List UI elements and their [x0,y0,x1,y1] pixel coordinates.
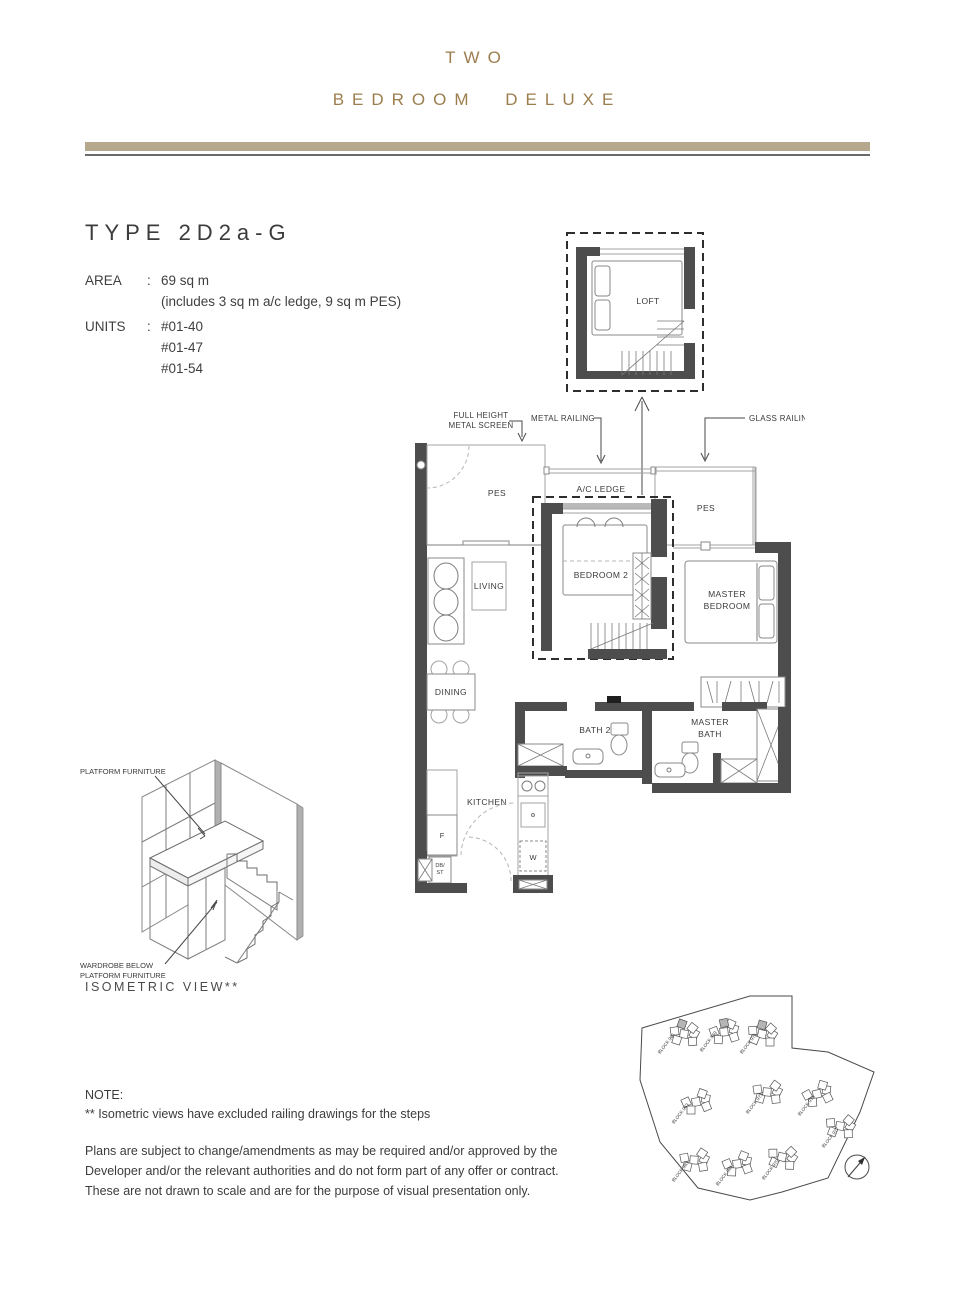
brochure-page: TWO BEDROOM DELUXE TYPE 2D2a-G AREA : 69… [0,0,954,1296]
area-value: 69 sq m [161,270,209,291]
callout-label: METAL SCREEN [449,421,514,430]
room-kitchen: KITCHEN F DB/ ST W [415,770,553,893]
db-st-label: ST [436,870,444,876]
sofa [428,558,464,644]
disclaimer-text: Plans are subject to change/amendments a… [85,1141,567,1202]
note-block: NOTE: ** Isometric views have excluded r… [85,1086,585,1202]
washer-label: W [529,853,537,862]
room-dining: DINING [427,661,475,723]
header-divider-bar [85,142,870,156]
room-label-loft: LOFT [636,296,659,306]
bath2-toilet [611,723,628,735]
master-bath-sink [655,763,685,777]
wardrobe-below-label: PLATFORM FURNITURE [80,971,166,980]
page-title-line2: BEDROOM DELUXE [0,90,954,110]
room-pes-left: PES [427,445,545,545]
callout-glass-railing: GLASS RAILING [701,414,805,461]
room-label-bath2: BATH 2 [579,725,611,735]
callout-label: GLASS RAILING [749,414,805,423]
units-row: UNITS : #01-40 [85,316,401,337]
fridge-label: F [440,831,445,840]
area-row: AREA : 69 sq m [85,270,401,291]
left-boundary-wall [415,443,427,890]
loft-plan: LOFT [567,233,703,391]
unit-number: #01-47 [161,337,401,358]
kitchen-sink [521,803,545,827]
room-master-bedroom: MASTER BEDROOM [685,542,791,709]
platform-furniture-label: PLATFORM FURNITURE [80,767,166,776]
room-label-master-bath: BATH [698,729,722,739]
room-label-kitchen: KITCHEN [467,797,507,807]
area-label: AREA [85,270,147,291]
note-line: ** Isometric views have excluded railing… [85,1105,585,1124]
note-heading: NOTE: [85,1086,585,1105]
isometric-view-caption: ISOMETRIC VIEW** [85,980,240,994]
callout-label: FULL HEIGHT [453,411,508,420]
isometric-view-diagram: PLATFORM FURNITURE WARDROBE BELOW PLATFO… [75,752,335,1002]
units-label: UNITS [85,316,147,337]
room-label-bedroom2: BEDROOM 2 [574,570,629,580]
spec-block: AREA : 69 sq m (includes 3 sq m a/c ledg… [85,270,401,379]
room-label-ac-ledge: A/C LEDGE [577,484,626,494]
area-colon: : [147,270,161,291]
bedroom2-stairs [591,623,653,649]
wardrobe-below-label: WARDROBE BELOW [80,961,154,970]
area-note: (includes 3 sq m a/c ledge, 9 sq m PES) [161,291,401,312]
room-label-master-bedroom: BEDROOM [704,601,751,611]
db-st-label: DB/ [435,863,445,869]
callout-metal-railing: METAL RAILING [531,414,605,463]
site-key-plan: BLOCK 965 BLOCK 969 BLOCK 971 BLOCK 963 … [632,992,878,1214]
room-bath2: BATH 2 [515,696,652,784]
unit-number: #01-40 [161,316,203,337]
room-label-master-bath: MASTER [691,717,729,727]
room-label-pes-left: PES [488,488,506,498]
room-master-bath: MASTER BATH [652,702,791,793]
callout-full-height-metal-screen: FULL HEIGHT METAL SCREEN [449,411,526,441]
highlighted-unit [719,1018,728,1027]
room-pes-right: PES [655,467,756,550]
unit-number: #01-54 [161,358,401,379]
room-living: LIVING [428,558,506,644]
master-bath-toilet [682,742,698,753]
room-bedroom2: BEDROOM 2 [533,497,673,659]
room-label-master-bedroom: MASTER [708,589,746,599]
page-title-line1: TWO [0,48,954,68]
highlighted-unit [757,1020,767,1030]
type-heading: TYPE 2D2a-G [85,220,292,246]
room-label-dining: DINING [435,687,467,697]
bath2-sink [573,749,603,764]
north-compass-icon [845,1155,869,1179]
loft-reference-arrow [635,397,649,495]
floor-plan-diagram: LOFT FULL HEIGHT METAL SCREEN METAL RAIL… [405,225,805,900]
units-colon: : [147,316,161,337]
room-label-living: LIVING [474,581,504,591]
room-label-pes-right: PES [697,503,715,513]
callout-label: METAL RAILING [531,414,595,423]
